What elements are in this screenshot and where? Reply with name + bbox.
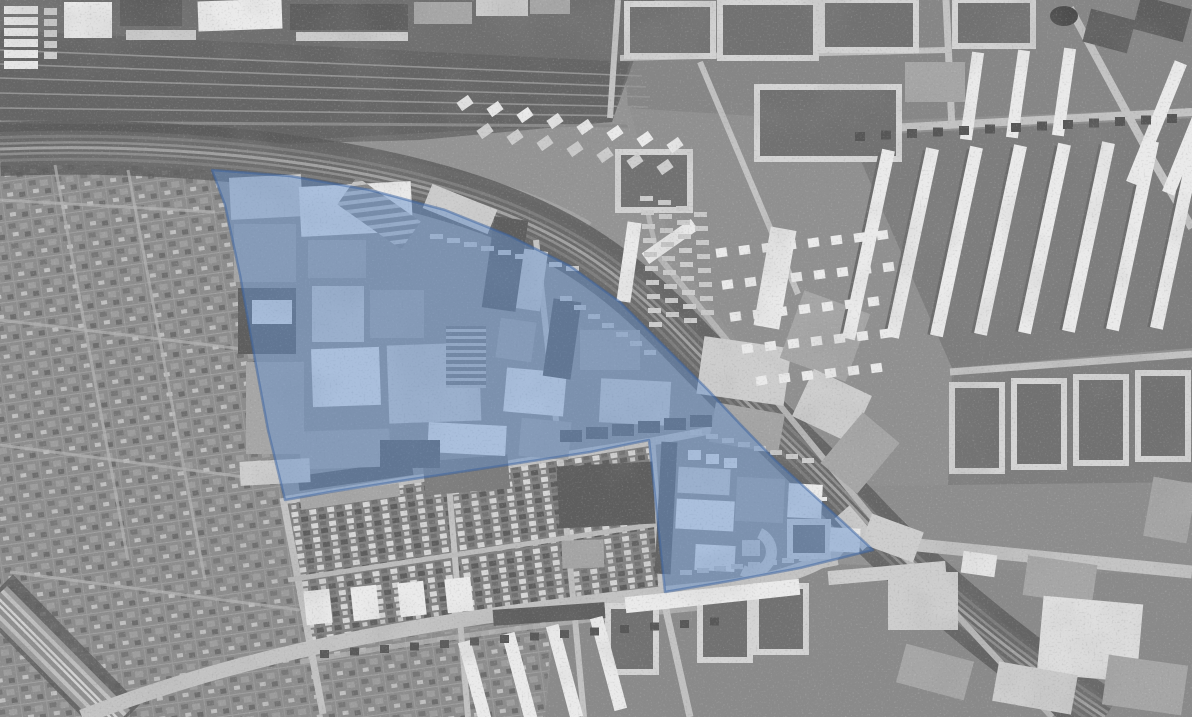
aerial-photo-canvas [0, 0, 1192, 717]
aerial-map-view [0, 0, 1192, 717]
